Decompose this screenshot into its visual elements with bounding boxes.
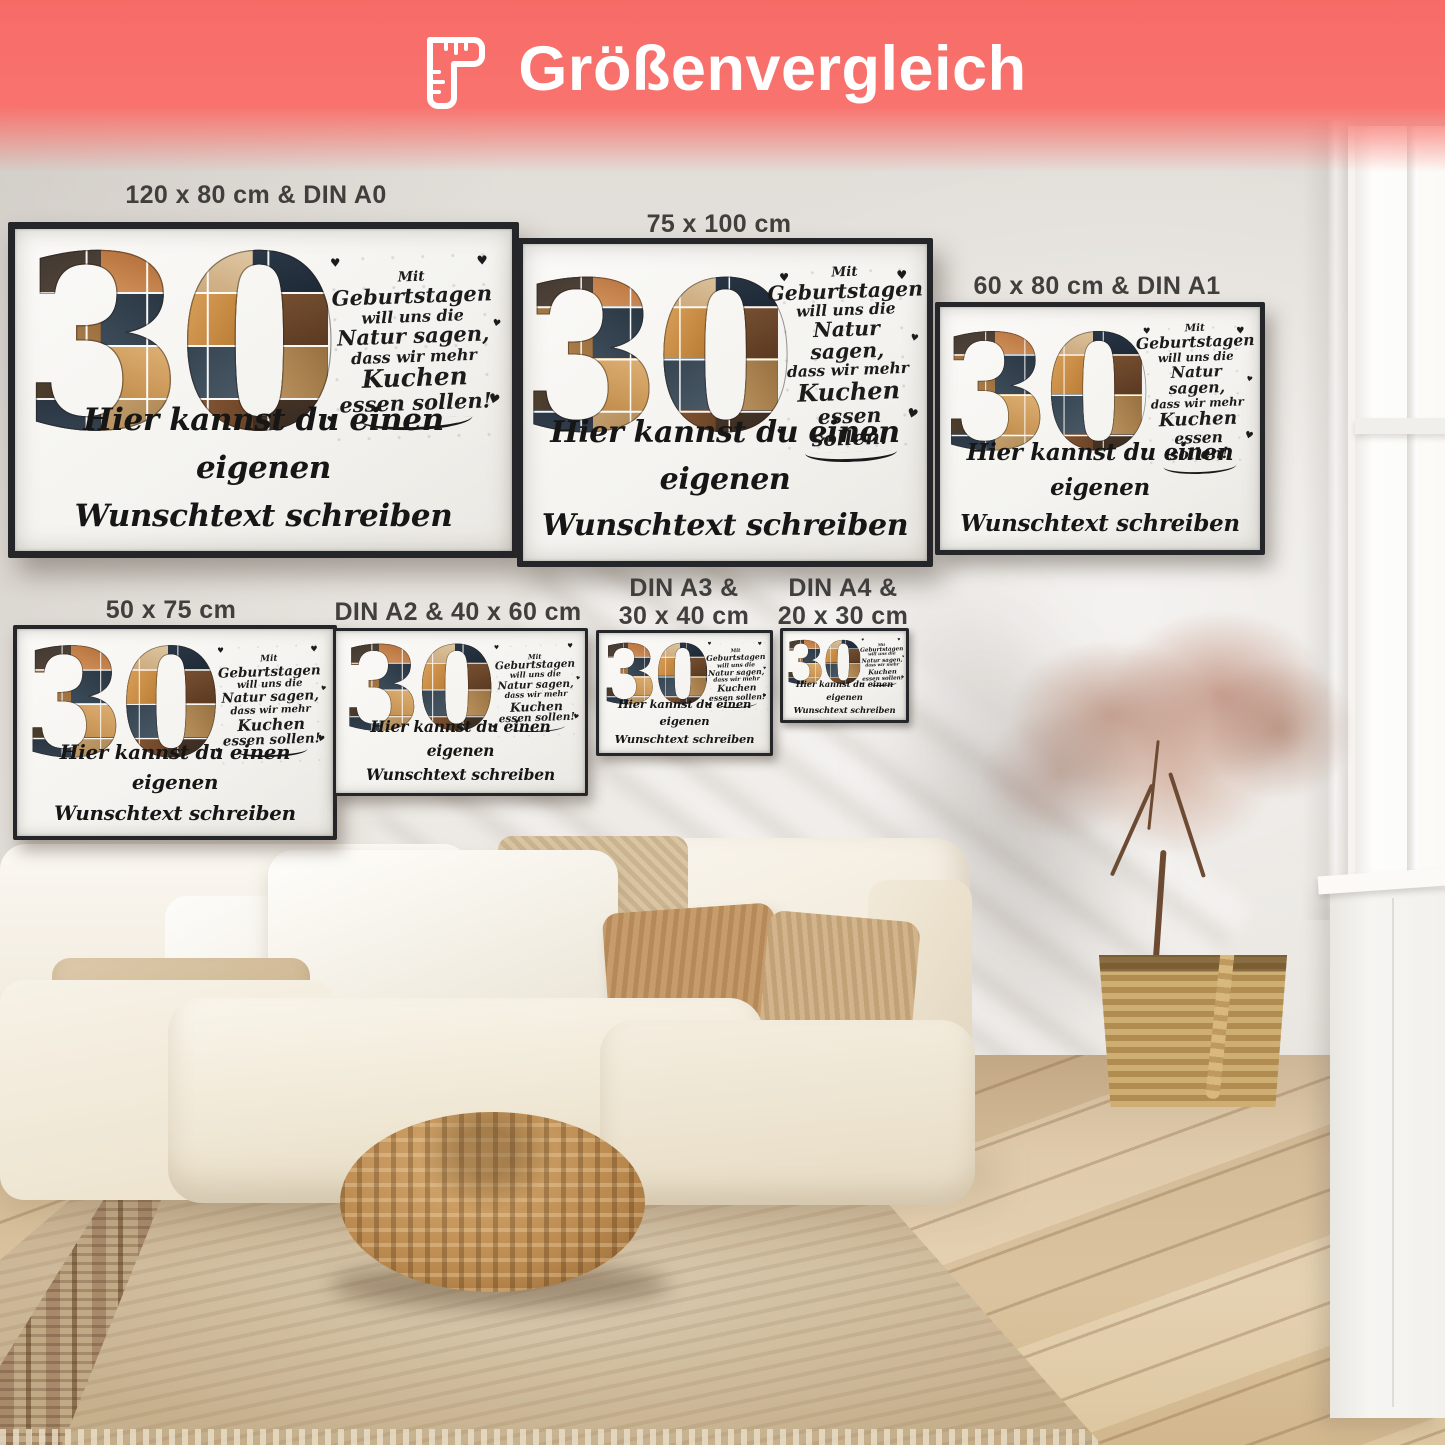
heart-icon: ♥: [1245, 375, 1253, 384]
heart-icon: ♥: [494, 645, 499, 651]
custom-text-placeholder: Hier kannst du einen eigenenWunschtext s…: [599, 696, 770, 749]
custom-text-line: Hier kannst du einen eigenen: [599, 696, 770, 732]
quote-line: will uns die: [717, 662, 755, 670]
quote-line: will uns die: [795, 299, 895, 319]
quote-line: will uns die: [868, 652, 896, 658]
quote-line: Mit: [877, 643, 884, 647]
custom-text-line: Wunschtext schreiben: [783, 704, 906, 717]
poster-canvas: 30 MitGeburtstagenwill uns dieNatur sage…: [940, 307, 1260, 550]
custom-text-line: Hier kannst du einen eigenen: [15, 396, 512, 492]
poster-canvas: 30 MitGeburtstagenwill uns dieNatur sage…: [336, 631, 585, 793]
living-room-scene: 30 MitGeburtstagenwill uns dieNatur sage…: [0, 0, 1445, 1445]
quote-line: dass wir mehr: [865, 663, 899, 669]
woven-basket: [1095, 955, 1291, 1107]
quote-line: Mit: [398, 270, 426, 286]
woven-pouf: [340, 1112, 645, 1292]
heart-icon: ♥: [763, 666, 767, 670]
quote-line: Kuchen: [1158, 408, 1237, 431]
heart-icon: ♥: [491, 318, 501, 330]
custom-text-placeholder: Hier kannst du einen eigenenWunschtext s…: [940, 435, 1260, 542]
quote-line: will uns die: [237, 678, 303, 691]
heart-icon: ♥: [897, 638, 900, 642]
custom-text-line: Hier kannst du einen eigenen: [336, 715, 585, 763]
poster-canvas: 30 MitGeburtstagenwill uns dieNatur sage…: [783, 631, 906, 720]
custom-text-placeholder: Hier kannst du einen eigenenWunschtext s…: [336, 715, 585, 787]
size-label: 60 x 80 cm & DIN A1: [973, 272, 1220, 300]
quote-line: Kuchen: [237, 715, 305, 734]
poster-din-a4-20x30: 30 MitGeburtstagenwill uns dieNatur sage…: [780, 628, 909, 723]
quote-line: Natur sagen,: [497, 678, 573, 692]
quote-line: Natur sagen,: [337, 322, 490, 350]
quote-line: Geburtstagen: [331, 282, 492, 310]
heart-icon: ♥: [567, 643, 573, 650]
poster-canvas: 30 MitGeburtstagenwill uns dieNatur sage…: [599, 633, 770, 753]
size-label: DIN A2 & 40 x 60 cm: [334, 598, 581, 626]
size-comparison-banner: Größenvergleich: [0, 0, 1445, 172]
size-label: DIN A3 & 30 x 40 cm: [619, 574, 750, 630]
heart-icon: ♥: [757, 642, 761, 647]
heart-icon: ♥: [778, 271, 788, 283]
custom-text-line: Wunschtext schreiben: [336, 763, 585, 787]
poster-din-a3-30x40: 30 MitGeburtstagenwill uns dieNatur sage…: [596, 630, 773, 756]
size-label: DIN A4 & 20 x 30 cm: [778, 574, 909, 630]
heart-icon: ♥: [896, 268, 907, 282]
poster-canvas: 30 MitGeburtstagenwill uns dieNatur sage…: [523, 244, 927, 561]
poster-75x100: 30 MitGeburtstagenwill uns dieNatur sage…: [517, 238, 933, 567]
custom-text-line: Hier kannst du einen eigenen: [17, 737, 333, 799]
banner-title: Größenvergleich: [518, 33, 1026, 105]
custom-text-line: Wunschtext schreiben: [940, 506, 1260, 542]
custom-text-placeholder: Hier kannst du einen eigenenWunschtext s…: [783, 678, 906, 717]
window-jamb: [1407, 126, 1417, 906]
quote-line: Geburtstagen: [495, 658, 576, 672]
quote-line: will uns die: [361, 306, 464, 327]
quote-line: Kuchen: [796, 377, 899, 407]
window: [1348, 126, 1445, 906]
heart-icon: ♥: [217, 647, 224, 655]
quote-line: will uns die: [1157, 349, 1233, 364]
custom-text-placeholder: Hier kannst du einen eigenenWunschtext s…: [523, 410, 927, 550]
size-label: 50 x 75 cm: [106, 596, 237, 624]
quote-line: dass wir mehr: [230, 704, 311, 718]
poster-60x80-din-a1: 30 MitGeburtstagenwill uns dieNatur sage…: [935, 302, 1265, 555]
quote-line: Kuchen: [717, 683, 756, 694]
poster-120x80-din-a0: 30 MitGeburtstagenwill uns dieNatur sage…: [8, 222, 519, 558]
quote-line: dass wir mehr: [504, 690, 567, 701]
heart-icon: ♥: [310, 645, 318, 654]
window-mullion: [1355, 418, 1445, 434]
quote-line: Geburtstagen: [860, 646, 903, 654]
quote-line: Kuchen: [361, 363, 468, 393]
quote-line: Mit: [831, 264, 858, 279]
heart-icon: ♥: [476, 253, 488, 267]
poster-canvas: 30 MitGeburtstagenwill uns dieNatur sage…: [17, 629, 333, 836]
heart-icon: ♥: [1142, 327, 1150, 336]
quote-line: Mit: [730, 648, 740, 654]
quote-line: will uns die: [510, 670, 562, 680]
quote-line: Kuchen: [510, 699, 563, 714]
rug-fringe: [0, 1429, 1125, 1445]
quote-line: dass wir mehr: [351, 345, 477, 367]
quote-line: Mit: [1184, 322, 1204, 334]
ruler-icon: [418, 26, 492, 112]
heart-icon: ♥: [908, 332, 918, 343]
size-label: 120 x 80 cm & DIN A0: [125, 181, 386, 209]
quote-line: dass wir mehr: [1150, 395, 1243, 411]
size-label: 75 x 100 cm: [647, 210, 792, 238]
quote-line: Natur sagen,: [1140, 361, 1251, 398]
quote-line: Natur sagen,: [708, 668, 765, 678]
quote-line: Natur sagen,: [861, 657, 902, 665]
quote-line: dass wir mehr: [786, 360, 908, 381]
poster-canvas: 30 MitGeburtstagenwill uns dieNatur sage…: [15, 229, 512, 551]
cabinet-seam: [1392, 898, 1394, 1407]
quote-line: Natur sagen,: [221, 689, 319, 707]
quote-line: Kuchen: [868, 668, 897, 676]
custom-text-line: Wunschtext schreiben: [523, 503, 927, 550]
heart-icon: ♥: [574, 676, 579, 682]
custom-text-line: Wunschtext schreiben: [599, 731, 770, 749]
sofa-seat-right: [600, 1020, 975, 1205]
custom-text-line: Hier kannst du einen eigenen: [783, 678, 906, 704]
custom-text-line: Hier kannst du einen eigenen: [940, 435, 1260, 506]
heart-icon: ♥: [1236, 326, 1245, 336]
quote-line: dass wir mehr: [713, 676, 760, 684]
custom-text-line: Wunschtext schreiben: [15, 492, 512, 540]
heart-icon: ♥: [707, 643, 711, 648]
custom-text-placeholder: Hier kannst du einen eigenenWunschtext s…: [15, 396, 512, 540]
poster-50x75: 30 MitGeburtstagenwill uns dieNatur sage…: [13, 625, 337, 840]
quote-line: Natur sagen,: [776, 315, 917, 364]
quote-line: Geburtstagen: [706, 653, 766, 663]
heart-icon: ♥: [330, 256, 341, 269]
heart-icon: ♥: [901, 656, 904, 659]
quote-line: Mit: [528, 652, 542, 660]
custom-text-line: Hier kannst du einen eigenen: [523, 410, 927, 503]
heart-icon: ♥: [320, 686, 327, 694]
custom-text-placeholder: Hier kannst du einen eigenenWunschtext s…: [17, 737, 333, 829]
custom-text-line: Wunschtext schreiben: [17, 798, 333, 829]
heart-icon: ♥: [861, 638, 864, 641]
poster-din-a2-40x60: 30 MitGeburtstagenwill uns dieNatur sage…: [333, 628, 588, 796]
quote-line: Geburtstagen: [218, 663, 321, 681]
quote-line: Mit: [260, 655, 278, 665]
